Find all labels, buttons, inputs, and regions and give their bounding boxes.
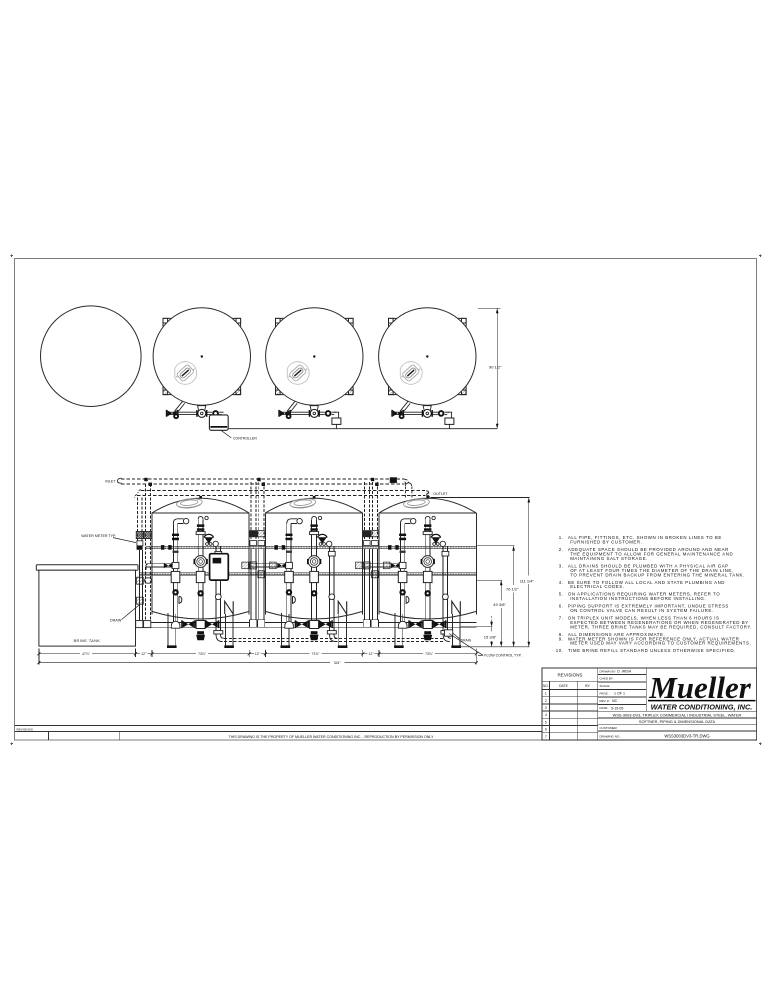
svg-text:73⅞": 73⅞" bbox=[198, 652, 207, 656]
svg-text:WSS-3003-DV3, TRIPLEX COMMERCI: WSS-3003-DV3, TRIPLEX COMMERCIAL / INDUS… bbox=[613, 712, 742, 717]
svg-text:49 3/8": 49 3/8" bbox=[493, 602, 506, 607]
svg-text:324": 324" bbox=[334, 661, 342, 665]
svg-text:SCALE:: SCALE: bbox=[600, 684, 611, 688]
svg-text:Mueller: Mueller bbox=[648, 670, 752, 705]
svg-text:TIME BRINE REFILL STANDARD UNL: TIME BRINE REFILL STANDARD UNLESS OTHERW… bbox=[568, 648, 736, 653]
svg-text:FLOW CONTROL TYP.: FLOW CONTROL TYP. bbox=[484, 654, 521, 658]
svg-text:111 1/4": 111 1/4" bbox=[520, 578, 535, 583]
svg-text:MAINTAINING SALT STORAGE.: MAINTAINING SALT STORAGE. bbox=[570, 556, 648, 561]
svg-text:METER, THREE BRINE TANKS MAY B: METER, THREE BRINE TANKS MAY BE REQUIRED… bbox=[570, 624, 752, 629]
svg-text:ELECTRICAL CODES.: ELECTRICAL CODES. bbox=[570, 584, 624, 589]
svg-text:76 1/2": 76 1/2" bbox=[506, 587, 519, 592]
svg-text:10.: 10. bbox=[556, 648, 564, 653]
svg-text:INLET: INLET bbox=[105, 480, 116, 484]
svg-text:6: 6 bbox=[545, 728, 547, 732]
svg-text:DATE: DATE bbox=[559, 684, 569, 688]
svg-text:15 3/8": 15 3/8" bbox=[484, 634, 497, 639]
svg-text:INSTALLATION INSTRUCTIONS BEFO: INSTALLATION INSTRUCTIONS BEFORE INSTALL… bbox=[570, 596, 706, 601]
svg-text:5: 5 bbox=[545, 720, 547, 724]
svg-text:PAGE:: PAGE: bbox=[600, 691, 609, 695]
svg-text:2.: 2. bbox=[559, 547, 564, 552]
svg-text:1 OF 1: 1 OF 1 bbox=[614, 692, 625, 696]
svg-text:1: 1 bbox=[545, 692, 547, 696]
svg-text:SOFTNER, PIPING & DIMENSIONAL: SOFTNER, PIPING & DIMENSIONAL DATA bbox=[639, 719, 716, 724]
svg-text:3: 3 bbox=[545, 706, 547, 710]
svg-text:CHKD BY:: CHKD BY: bbox=[600, 677, 614, 681]
svg-text:5.: 5. bbox=[559, 592, 564, 597]
svg-text:DRAIN: DRAIN bbox=[110, 618, 122, 622]
svg-text:CONTROLLER: CONTROLLER bbox=[233, 436, 257, 440]
svg-text:73⅞": 73⅞" bbox=[312, 652, 321, 656]
svg-text:D. IRISH: D. IRISH bbox=[617, 669, 632, 673]
svg-text:3.: 3. bbox=[559, 563, 564, 568]
svg-text:4: 4 bbox=[545, 713, 547, 717]
svg-text:7.: 7. bbox=[559, 616, 564, 621]
svg-text:FURNISHED BY CUSTOMER.: FURNISHED BY CUSTOMER. bbox=[570, 540, 642, 545]
svg-text:1.: 1. bbox=[559, 535, 564, 540]
svg-text:WATER METER TYP.: WATER METER TYP. bbox=[81, 534, 116, 538]
svg-text:73⅞": 73⅞" bbox=[425, 652, 434, 656]
svg-text:METER USED MAY VARY ACCORDING: METER USED MAY VARY ACCORDING TO CUSTOME… bbox=[570, 641, 751, 646]
svg-text:WSS3003DV3-TR.DWG: WSS3003DV3-TR.DWG bbox=[664, 734, 709, 739]
svg-text:REVISIONS: REVISIONS bbox=[17, 727, 33, 731]
svg-text:NO.: NO. bbox=[543, 684, 549, 688]
svg-text:7: 7 bbox=[545, 735, 547, 739]
svg-text:6.: 6. bbox=[559, 604, 564, 609]
svg-text:BRINE TANK: BRINE TANK bbox=[74, 639, 101, 643]
svg-text:47⅞": 47⅞" bbox=[82, 652, 91, 656]
svg-text:BY: BY bbox=[585, 684, 590, 688]
svg-text:WATER CONDITIONING, INC.: WATER CONDITIONING, INC. bbox=[651, 703, 753, 712]
svg-text:NC: NC bbox=[612, 699, 618, 703]
svg-text:ON CONTROL VALVE CAN RESULT IN: ON CONTROL VALVE CAN RESULT IN SYSTEM FA… bbox=[570, 608, 713, 613]
svg-text:5-15-05: 5-15-05 bbox=[611, 706, 623, 710]
svg-text:DRAWN BY:: DRAWN BY: bbox=[600, 669, 617, 673]
svg-text:REVISIONS: REVISIONS bbox=[557, 673, 582, 678]
svg-text:4.: 4. bbox=[559, 580, 564, 585]
svg-text:9.: 9. bbox=[559, 636, 564, 641]
svg-text:OUTLET: OUTLET bbox=[433, 492, 448, 496]
svg-text:THIS DRAWING IS THE PROPERTY O: THIS DRAWING IS THE PROPERTY OF MUELLER … bbox=[229, 735, 435, 739]
svg-text:REV. #:: REV. #: bbox=[600, 699, 610, 703]
svg-text:2: 2 bbox=[545, 699, 547, 703]
svg-text:TO PREVENT DRAIN BACKUP FROM E: TO PREVENT DRAIN BACKUP FROM ENTERING TH… bbox=[570, 572, 745, 577]
svg-text:90 1/2": 90 1/2" bbox=[489, 364, 502, 369]
svg-text:12": 12" bbox=[141, 652, 147, 656]
svg-text:12": 12" bbox=[255, 652, 261, 656]
svg-text:CUSTOMER:: CUSTOMER: bbox=[600, 726, 618, 730]
svg-text:12": 12" bbox=[369, 652, 375, 656]
svg-text:DATE:: DATE: bbox=[600, 706, 609, 710]
svg-text:DRAWING NO.:: DRAWING NO.: bbox=[600, 735, 622, 739]
